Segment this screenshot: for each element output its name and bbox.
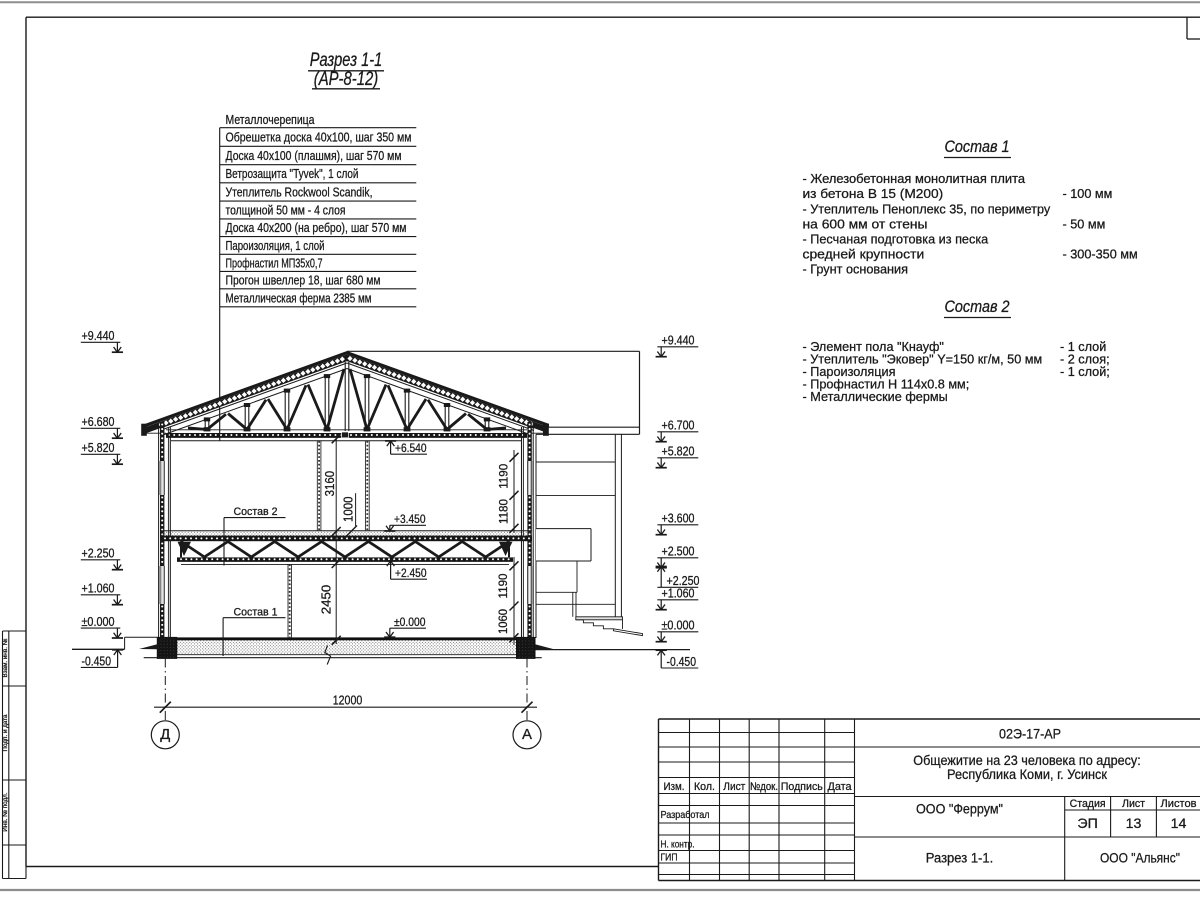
svg-text:Кол.: Кол. xyxy=(694,781,715,793)
svg-text:Лист: Лист xyxy=(723,781,745,793)
svg-text:Взам. инв. №: Взам. инв. № xyxy=(2,638,9,677)
svg-text:14: 14 xyxy=(1171,816,1187,832)
svg-text:+5.820: +5.820 xyxy=(662,444,695,459)
svg-text:+6.680: +6.680 xyxy=(82,414,115,429)
svg-text:+6.700: +6.700 xyxy=(662,418,695,433)
svg-text:1000: 1000 xyxy=(340,497,355,523)
svg-text:+9.440: +9.440 xyxy=(662,333,695,348)
svg-text:- 100 мм: - 100 мм xyxy=(1063,186,1113,201)
svg-text:±0.000: ±0.000 xyxy=(82,614,115,629)
svg-text:Прогон швеллер 18, шаг 680 мм: Прогон швеллер 18, шаг 680 мм xyxy=(226,273,381,288)
svg-text:+3.450: +3.450 xyxy=(394,513,426,526)
svg-text:-0.450: -0.450 xyxy=(82,653,112,668)
svg-text:Общежитие на 23 человека по ад: Общежитие на 23 человека по адресу: xyxy=(913,753,1141,768)
svg-text:±0.000: ±0.000 xyxy=(662,618,695,633)
svg-text:+1.060: +1.060 xyxy=(82,581,115,596)
svg-text:+2.250: +2.250 xyxy=(82,546,115,561)
svg-text:Разрез 1-1: Разрез 1-1 xyxy=(310,50,383,71)
svg-text:+3.600: +3.600 xyxy=(662,511,695,526)
svg-text:(АР-8-12): (АР-8-12) xyxy=(314,69,379,90)
svg-text:ГИП: ГИП xyxy=(661,853,678,864)
svg-text:- Утеплитель Пеноплекс 35, по: - Утеплитель Пеноплекс 35, по периметру xyxy=(803,201,1051,216)
svg-text:Республика Коми, г. Усинск: Республика Коми, г. Усинск xyxy=(947,767,1108,782)
svg-text:- 50 мм: - 50 мм xyxy=(1063,216,1106,231)
svg-text:2450: 2450 xyxy=(319,585,334,615)
svg-text:Металлочерепица: Металлочерепица xyxy=(226,112,316,127)
svg-text:ООО "Альянс": ООО "Альянс" xyxy=(1100,851,1180,867)
svg-text:12000: 12000 xyxy=(333,692,363,707)
svg-text:Состав 2: Состав 2 xyxy=(945,298,1010,316)
svg-text:ЭП: ЭП xyxy=(1077,816,1097,832)
svg-text:02Э-17-АР: 02Э-17-АР xyxy=(999,726,1061,742)
svg-text:№док.: №док. xyxy=(750,781,778,793)
svg-text:Подпись: Подпись xyxy=(781,781,823,793)
svg-text:1180: 1180 xyxy=(496,499,510,524)
svg-text:-0.450: -0.450 xyxy=(667,654,697,669)
svg-text:Подп. и дата: Подп. и дата xyxy=(2,714,9,752)
svg-text:3160: 3160 xyxy=(322,471,337,497)
svg-text:- 300-350 мм: - 300-350 мм xyxy=(1063,246,1138,261)
svg-text:1190: 1190 xyxy=(496,464,510,489)
svg-text:Изм.: Изм. xyxy=(664,781,685,793)
svg-text:Металлическая ферма 2385 мм: Металлическая ферма 2385 мм xyxy=(226,290,372,305)
svg-text:из бетона В 15 (М200): из бетона В 15 (М200) xyxy=(803,186,944,201)
svg-text:ООО "Феррум": ООО "Феррум" xyxy=(916,802,1003,818)
svg-text:Профнастил МП35х0,7: Профнастил МП35х0,7 xyxy=(226,255,323,270)
svg-text:Состав 2: Состав 2 xyxy=(234,506,278,518)
svg-text:Пароизоляция, 1 слой: Пароизоляция, 1 слой xyxy=(226,238,325,253)
svg-text:Д: Д xyxy=(160,726,170,743)
svg-text:Лист: Лист xyxy=(1122,798,1145,810)
svg-text:+9.440: +9.440 xyxy=(82,328,115,343)
svg-text:- Грунт основания: - Грунт основания xyxy=(803,262,909,277)
svg-text:Листов: Листов xyxy=(1161,798,1197,810)
svg-text:Утеплитель Rockwool Scandik,: Утеплитель Rockwool Scandik, xyxy=(226,184,373,199)
svg-text:13: 13 xyxy=(1126,816,1142,832)
svg-text:1060: 1060 xyxy=(496,609,510,634)
svg-text:+6.540: +6.540 xyxy=(395,442,427,455)
svg-text:Обрешетка доска 40х100, шаг 35: Обрешетка доска 40х100, шаг 350 мм xyxy=(226,130,412,145)
svg-text:Инв. № подл.: Инв. № подл. xyxy=(2,792,9,831)
svg-text:Разработал: Разработал xyxy=(661,809,710,821)
svg-text:Разрез 1-1.: Разрез 1-1. xyxy=(926,851,994,867)
svg-text:- Песчаная подготовка из песка: - Песчаная подготовка из песка xyxy=(803,231,989,246)
svg-text:Доска 40х100 (плашмя), шаг 570: Доска 40х100 (плашмя), шаг 570 мм xyxy=(226,148,402,163)
svg-text:- 1 слой;: - 1 слой; xyxy=(1060,364,1110,379)
svg-text:средней крупности: средней крупности xyxy=(803,246,925,261)
svg-text:Доска 40х200 (на ребро), шаг 5: Доска 40х200 (на ребро), шаг 570 мм xyxy=(226,220,407,235)
svg-text:+2.450: +2.450 xyxy=(395,567,427,580)
svg-text:±0.000: ±0.000 xyxy=(394,616,426,629)
svg-text:Ветрозащита "Tyvek", 1 слой: Ветрозащита "Tyvek", 1 слой xyxy=(226,166,359,181)
svg-text:+1.060: +1.060 xyxy=(662,586,695,601)
svg-text:+5.820: +5.820 xyxy=(82,440,115,455)
svg-text:Стадия: Стадия xyxy=(1070,798,1106,810)
svg-text:- Металлические фермы: - Металлические фермы xyxy=(803,389,948,404)
svg-text:Н. контр.: Н. контр. xyxy=(661,840,695,851)
svg-text:Дата: Дата xyxy=(828,781,853,793)
svg-text:на 600 мм от стены: на 600 мм от стены xyxy=(803,216,928,231)
svg-text:Состав 1: Состав 1 xyxy=(945,138,1010,156)
svg-text:1190: 1190 xyxy=(496,573,510,598)
svg-text:+2.500: +2.500 xyxy=(662,544,695,559)
svg-text:А: А xyxy=(522,726,532,743)
svg-text:толщиной 50 мм - 4 слоя: толщиной 50 мм - 4 слоя xyxy=(226,203,346,218)
svg-text:Состав 1: Состав 1 xyxy=(234,606,278,618)
svg-text:- Железобетонная монолитная п: - Железобетонная монолитная плита xyxy=(803,171,1026,186)
